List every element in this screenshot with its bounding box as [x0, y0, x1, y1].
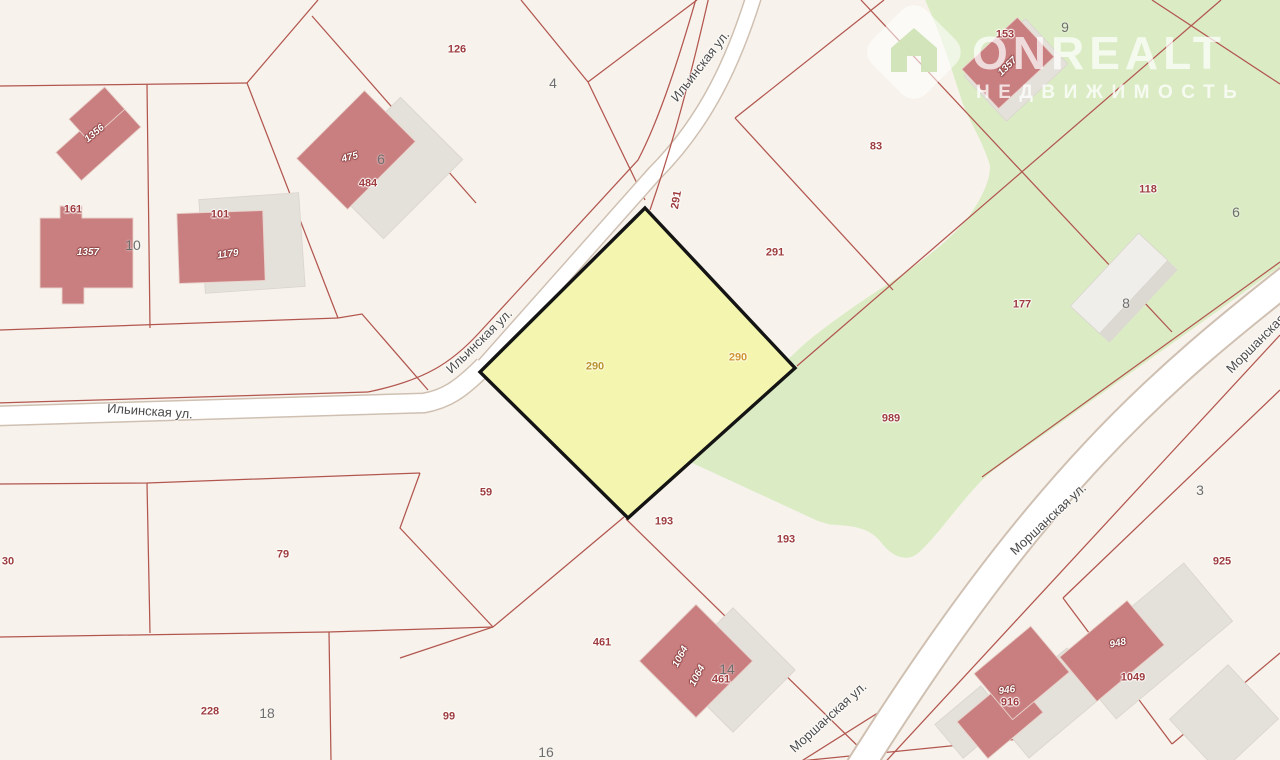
building-1357-left — [40, 206, 133, 304]
map-svg[interactable] — [0, 0, 1280, 760]
building-1179 — [177, 211, 265, 284]
building-1356 — [45, 87, 141, 181]
map-canvas[interactable]: ONREALT НЕДВИЖИМОСТЬ Ильинская ул.Ильинс… — [0, 0, 1280, 760]
